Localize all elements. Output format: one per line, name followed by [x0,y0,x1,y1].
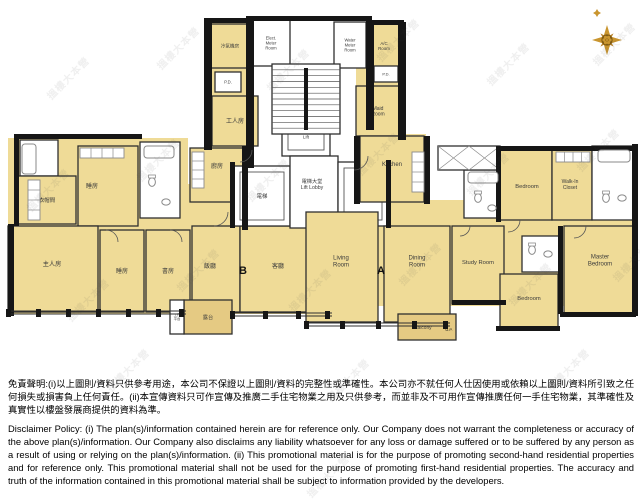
window-post [412,321,417,329]
window-post [6,309,11,317]
toilet [603,194,610,203]
toilet [149,178,156,187]
bathtub [468,172,498,183]
disclaimer: 免責聲明:(i)以上圖則/資料只供參考用途，本公司不保證以上圖則/資料的完整性或… [8,378,634,487]
window-post [66,309,71,317]
wall [496,326,560,331]
window-post [296,311,301,319]
window-post [376,321,381,329]
disclaimer-text-chinese: 免責聲明:(i)以上圖則/資料只供參考用途，本公司不保證以上圖則/資料的完整性或… [8,378,634,417]
wall [424,136,430,204]
toilet-tank [529,243,536,246]
label-bedroom-b2: 睡房 [116,267,128,275]
window-post [304,321,309,329]
wall [14,138,19,226]
label-bedroom-a1: Bedroom [515,184,539,190]
wall [204,18,212,150]
label-balcony-b: 露台 [203,313,213,321]
floor-plan: 冷氣機房P.D.工人房廚房衣帽間睡房主人房睡房書房飯廳客廳露台工作平台Elect… [0,0,640,372]
room-master-bedroom-a [564,226,634,314]
wall [496,146,501,222]
label-dining-room-a: DiningRoom [408,255,425,268]
wall [386,160,391,228]
bathtub [22,144,36,174]
unit-label-U.P.: U.P. [445,327,452,332]
wall [230,162,235,228]
stair-divider [304,68,308,130]
label-cloakroom-b: 衣帽間 [39,196,55,204]
room-dining-room-a [384,226,450,322]
label-study-b: 書房 [162,267,174,275]
label-dining-b: 飯廳 [204,262,216,270]
wall [246,16,254,168]
compass-petal [607,41,610,44]
room-master-bedroom-b [8,226,98,312]
window-post [230,311,235,319]
label-living-room-a: LivingRoom [333,255,349,268]
compass-petal [607,36,610,39]
room-bath-a3 [522,236,560,272]
window-post [263,311,268,319]
label-maid-room-b: 工人房 [226,117,244,125]
window-post [96,309,101,317]
window-post [156,309,161,317]
room-flat-roof-a [438,146,500,170]
compass-icon [592,25,622,55]
wall [632,144,638,316]
label-master-bedroom-b: 主人房 [43,260,62,268]
label-master-bedroom-a: MasterBedroom [588,254,612,267]
compass-north-marker [593,9,601,17]
toilet [529,246,536,255]
disclaimer-text-english: Disclaimer Policy: (i) The plan(s)/infor… [8,422,634,487]
window-post [126,309,131,317]
bathtub [144,146,174,158]
bathtub [598,150,630,162]
label-lift-b: 電梯 [257,192,268,200]
wall [558,226,563,314]
label-elect-meter-room: Elect.MeterRoom [265,36,277,51]
sink [544,251,552,257]
label-bedroom-b1: 睡房 [86,182,98,190]
label-pd-b: P.D. [224,79,232,84]
window-post [325,311,330,319]
toilet [475,194,482,203]
label-lift-lobby: 電梯大堂Lift Lobby [301,177,324,191]
unit-label-A: A [377,265,385,277]
wall [14,134,142,139]
wall [242,146,248,230]
wall [560,312,636,317]
label-kitchen-b: 廚房 [211,162,223,170]
window-post [179,309,184,317]
label-living-b: 客廳 [272,262,284,270]
label-ac-plant-b: 冷氣機房 [221,43,240,50]
label-study-room-a: Study Room [462,260,494,266]
compass-petal [604,36,607,39]
window-post [340,321,345,329]
label-bedroom-a2: Bedroom [517,296,541,302]
floorplan-page: 冷氣機房P.D.工人房廚房衣帽間睡房主人房睡房書房飯廳客廳露台工作平台Elect… [0,0,640,503]
wall [452,300,506,305]
compass-center [606,39,608,41]
toilet-tank [149,175,156,178]
unit-label-B: B [239,265,247,277]
label-water-meter-room: WaterMeterRoom [344,38,356,53]
toilet-tank [603,191,610,194]
wall [398,22,406,140]
window-post [36,309,41,317]
wall [366,20,374,130]
label-kitchen-a: Kitchen [382,162,402,168]
label-walk-in-closet-a: Walk-InCloset [562,179,579,191]
sink [162,199,170,205]
label-pd-a: P.D. [382,71,389,76]
sink [488,205,496,211]
label-lift-top: Lift [303,135,310,140]
sink [618,195,626,201]
wall [8,224,14,316]
wall [246,16,372,21]
toilet-tank [475,191,482,194]
